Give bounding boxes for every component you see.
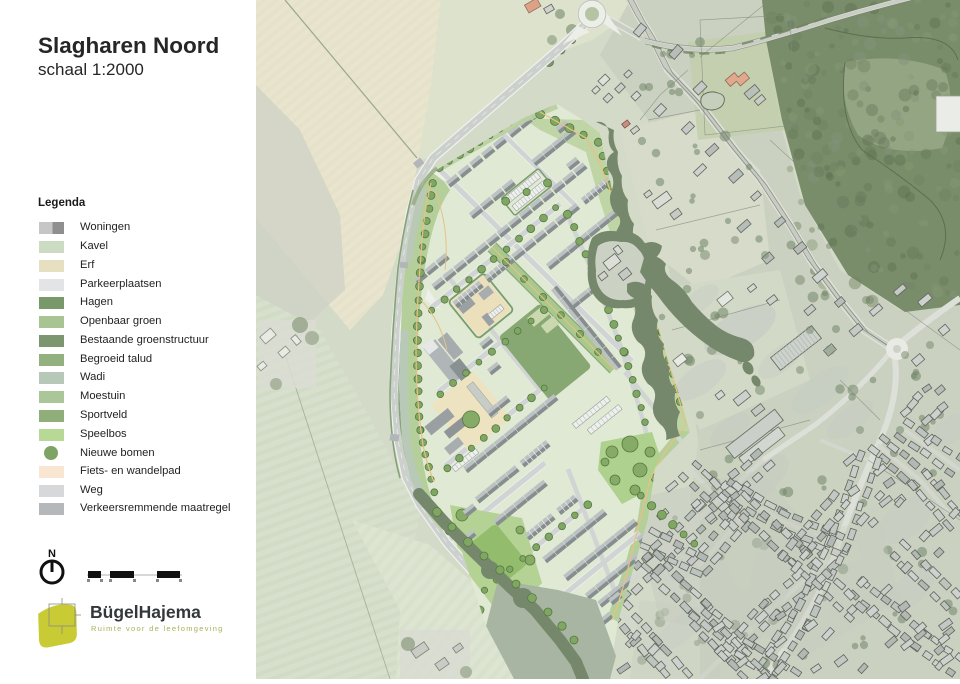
svg-text:N: N [48,548,56,560]
svg-text:BügelHajema: BügelHajema [90,602,201,622]
svg-text:Ruimte voor de leefomgeving: Ruimte voor de leefomgeving [91,624,224,633]
